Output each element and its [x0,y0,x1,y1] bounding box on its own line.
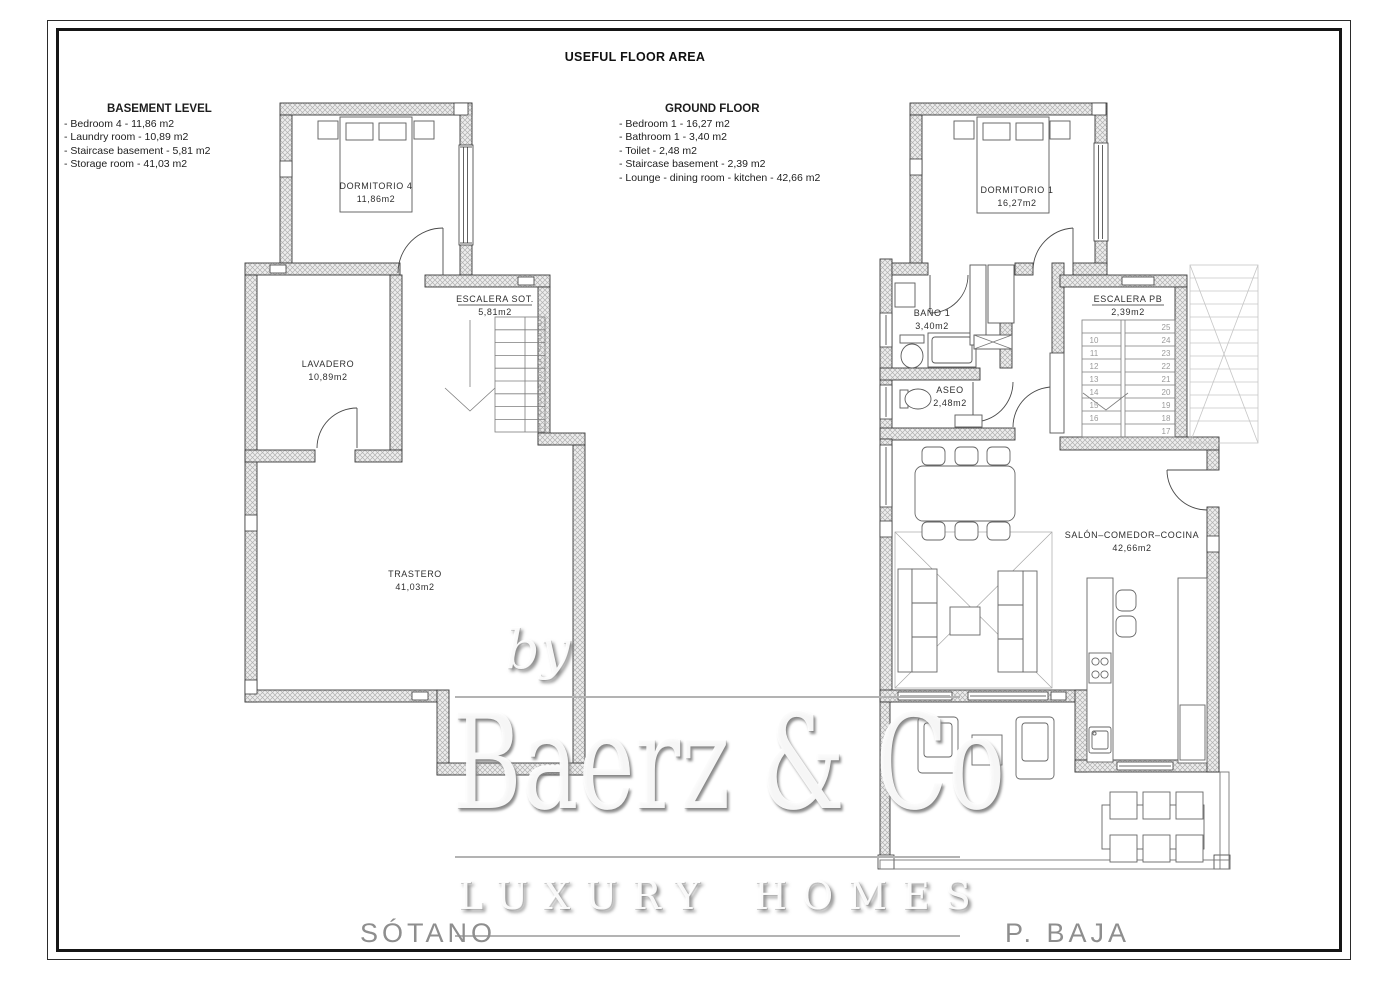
floor-plan-sheet: USEFUL FLOOR AREA BASEMENT LEVEL - Bedro… [0,0,1400,990]
room-label-dormitorio4: DORMITORIO 4 [339,181,412,191]
room-area-escalera-pb: 2,39m2 [1111,307,1145,317]
page-title: USEFUL FLOOR AREA [435,50,835,64]
legend-item: - Bedroom 4 - 11,86 m2 [64,118,212,131]
basement-room-labels: DORMITORIO 4 11,86m2 LAVADERO 10,89m2 ES… [302,181,534,592]
stair-number: 17 [1162,427,1171,436]
stair-number: 18 [1162,414,1171,423]
terrace-dining-set [1102,792,1204,862]
stair-number: 11 [1090,349,1099,358]
sofa-left [898,569,937,672]
stair-number: 4 [538,384,543,393]
stair-number: 22 [1162,362,1171,371]
legend-basement: BASEMENT LEVEL - Bedroom 4 - 11,86 m2 - … [64,103,212,172]
kitchen-island [1087,578,1136,762]
stair-number: 20 [1162,388,1171,397]
basement-stair-numbers: 9 8 7 6 5 4 3 2 1 [538,319,543,431]
laundry-door [317,408,357,448]
stair-number: 3 [538,397,543,406]
legend-ground: GROUND FLOOR - Bedroom 1 - 16,27 m2 - Ba… [619,103,820,185]
ground-floorplan: 10 11 12 13 14 15 16 25 24 23 22 21 20 1… [870,95,1270,885]
basement-floorplan: 9 8 7 6 5 4 3 2 1 DORMITORIO 4 11,86m2 L… [240,95,600,795]
room-area-escalera-sot: 5,81m2 [478,307,512,317]
floor-label-sotano: SÓTANO [360,918,496,949]
basement-stairs [445,317,545,432]
stair-number: 14 [1090,388,1099,397]
stair-number: 6 [538,358,543,367]
legend-item: - Lounge - dining room - kitchen - 42,66… [619,172,820,185]
room-label-salon: SALÓN–COMEDOR–COCINA [1065,530,1200,540]
stair-number: 9 [538,319,543,328]
legend-item: - Storage room - 41,03 m2 [64,158,212,171]
legend-item: - Bedroom 1 - 16,27 m2 [619,118,820,131]
stair-number: 10 [1090,336,1099,345]
room-area-aseo: 2,48m2 [933,398,967,408]
stair-number: 1 [538,422,543,431]
room-area-lavadero: 10,89m2 [308,372,347,382]
ground-stair-numbers-right: 25 24 23 22 21 20 19 18 17 [1162,323,1171,436]
kitchen-counter-right [1178,578,1207,763]
stair-number: 16 [1090,414,1099,423]
stair-number: 12 [1090,362,1099,371]
stair-number: 5 [538,371,543,380]
legend-ground-items: - Bedroom 1 - 16,27 m2 - Bathroom 1 - 3,… [619,118,820,185]
stair-number: 2 [538,410,543,419]
coffee-table [950,607,980,635]
hall-wardrobes [970,265,1064,433]
room-label-escalera-pb: ESCALERA PB [1094,294,1163,304]
room-label-trastero: TRASTERO [388,569,442,579]
room-label-lavadero: LAVADERO [302,359,354,369]
legend-basement-items: - Bedroom 4 - 11,86 m2 - Laundry room - … [64,118,212,172]
basement-walls [245,103,585,775]
stair-number: 19 [1162,401,1171,410]
room-area-dormitorio1: 16,27m2 [997,198,1036,208]
bedroom4-door [398,228,443,275]
room-area-bano: 3,40m2 [915,321,949,331]
room-label-bano: BAÑO 1 [914,308,951,318]
stair-number: 21 [1162,375,1171,384]
legend-ground-title: GROUND FLOOR [665,103,820,115]
ground-stair-numbers-left: 10 11 12 13 14 15 16 [1090,336,1099,423]
room-label-dormitorio1: DORMITORIO 1 [980,185,1053,195]
stair-number: 23 [1162,349,1171,358]
legend-item: - Toilet - 2,48 m2 [619,145,820,158]
room-area-dormitorio4: 11,86m2 [357,194,396,204]
room-area-salon: 42,66m2 [1112,543,1151,553]
room-area-trastero: 41,03m2 [395,582,434,592]
room-label-escalera-sot: ESCALERA SOT. [456,294,534,304]
stair-number: 13 [1090,375,1099,384]
stair-number: 24 [1162,336,1171,345]
legend-basement-title: BASEMENT LEVEL [107,103,212,115]
legend-item: - Staircase basement - 5,81 m2 [64,145,212,158]
legend-item: - Laundry room - 10,89 m2 [64,131,212,144]
legend-item: - Staircase basement - 2,39 m2 [619,158,820,171]
exterior-staircase [1190,265,1258,443]
terrace-lounge [918,717,1054,779]
sofa-right [998,571,1037,672]
stair-number: 8 [538,332,543,341]
legend-item: - Bathroom 1 - 3,40 m2 [619,131,820,144]
stair-number: 15 [1090,401,1099,410]
stair-number: 25 [1162,323,1171,332]
floor-label-pbaja: P. BAJA [1005,918,1130,949]
stair-number: 7 [538,345,543,354]
room-label-aseo: ASEO [936,385,963,395]
dining-table-set [915,447,1015,540]
